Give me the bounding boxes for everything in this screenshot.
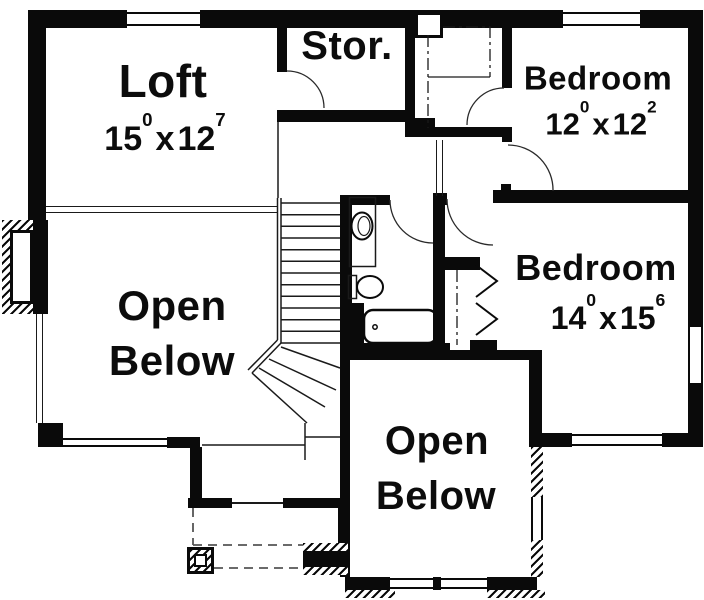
door-arcs [287, 71, 553, 245]
loft-dimension: 150x127 [104, 122, 225, 156]
stairs [278, 198, 341, 343]
dim-inch-b: 6 [655, 290, 665, 310]
dim-separator: x [592, 107, 609, 142]
bedroom2-dimension: 140x156 [551, 302, 666, 334]
bifold-door-icon [476, 265, 497, 335]
bedroom1-dimension: 120x122 [545, 109, 656, 140]
porch-dashed-outline [193, 508, 303, 568]
bedroom1-door-arc [508, 145, 553, 191]
dim-feet-b: 12 [613, 107, 647, 142]
storage-door-arc [287, 71, 324, 108]
bathroom-door-arc [390, 200, 433, 243]
dim-inch-a: 0 [586, 290, 596, 310]
bathtub-drain [373, 325, 377, 329]
closet1-rod-top [443, 27, 490, 77]
dim-feet-b: 12 [177, 120, 215, 158]
dim-inch-b: 2 [647, 97, 656, 116]
dim-feet-a: 14 [551, 300, 587, 336]
stair-winder [248, 340, 340, 460]
closet1-door-arc [467, 88, 504, 125]
open-below-left-label-line1: Open [117, 285, 226, 327]
bathtub-icon [364, 310, 437, 343]
dim-feet-a: 15 [104, 120, 142, 158]
bathroom-fixtures [349, 198, 438, 344]
dim-feet-a: 12 [545, 107, 579, 142]
dim-separator: x [156, 120, 175, 158]
floor-plan: Loft 150x127 Stor. Bedroom 120x122 Bedro… [0, 0, 704, 600]
closet-rods [428, 27, 490, 345]
dim-feet-b: 15 [620, 300, 656, 336]
toilet-tank [349, 276, 357, 299]
toilet-icon [357, 276, 383, 298]
sink-basin-inner [358, 217, 370, 236]
open-below-left-label-line2: Below [109, 340, 235, 382]
bedroom1-label: Bedroom [524, 62, 672, 95]
bedroom2-door-arc [447, 199, 493, 245]
dim-inch-a: 0 [142, 109, 152, 130]
dim-inch-b: 7 [215, 109, 225, 130]
storage-label: Stor. [301, 26, 392, 66]
open-below-bottom-label-line1: Open [385, 421, 489, 461]
open-below-bottom-label-line2: Below [376, 476, 496, 516]
loft-label: Loft [119, 58, 208, 104]
bedroom2-label: Bedroom [515, 250, 677, 286]
dim-separator: x [599, 300, 617, 336]
dim-inch-a: 0 [580, 97, 589, 116]
